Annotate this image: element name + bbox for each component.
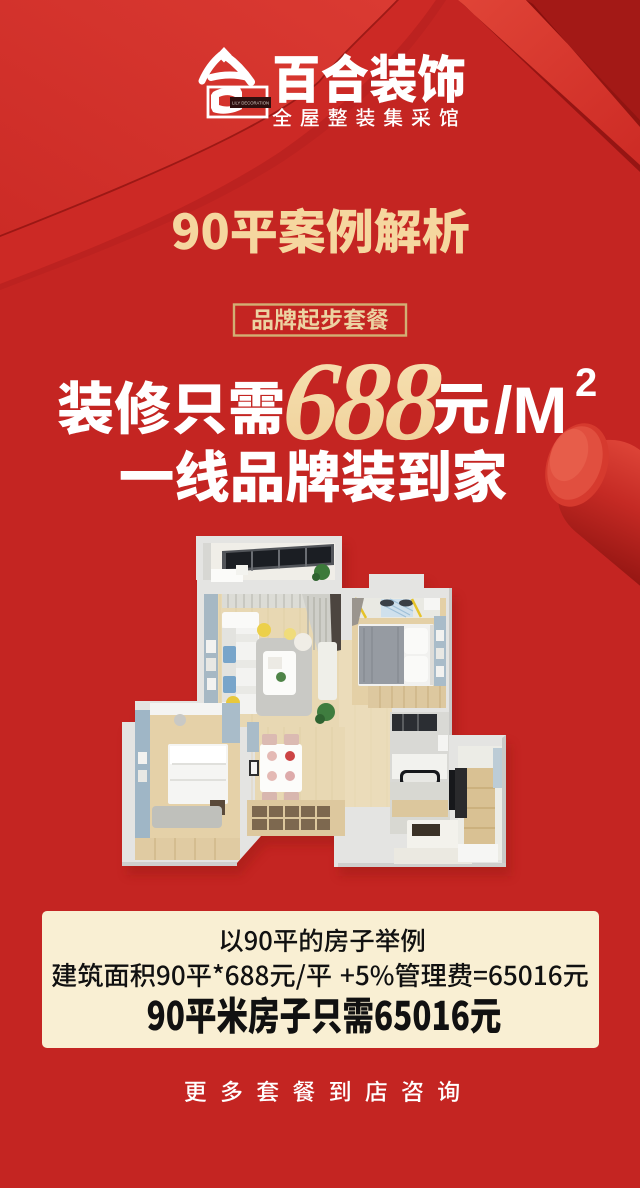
svg-text:688: 688 <box>279 340 444 464</box>
svg-text:LILY DECORATION: LILY DECORATION <box>232 101 269 106</box>
svg-text:2: 2 <box>575 361 597 405</box>
svg-text:/M: /M <box>494 373 567 447</box>
